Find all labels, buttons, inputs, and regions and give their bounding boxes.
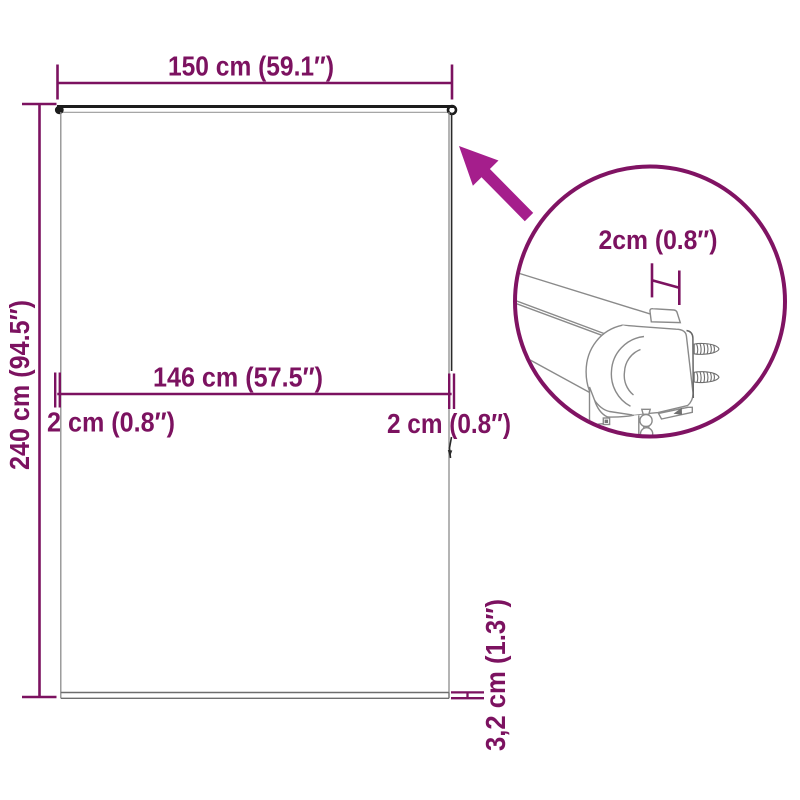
svg-text:2 cm (0.8″): 2 cm (0.8″) [47,407,175,438]
svg-text:2 cm (0.8″): 2 cm (0.8″) [387,408,511,439]
svg-text:240 cm (94.5″): 240 cm (94.5″) [4,300,35,470]
svg-text:146 cm (57.5″): 146 cm (57.5″) [153,362,323,393]
svg-text:3,2 cm (1.3″): 3,2 cm (1.3″) [480,599,511,751]
svg-text:150 cm (59.1″): 150 cm (59.1″) [168,51,334,82]
svg-text:2cm (0.8″): 2cm (0.8″) [599,225,718,255]
